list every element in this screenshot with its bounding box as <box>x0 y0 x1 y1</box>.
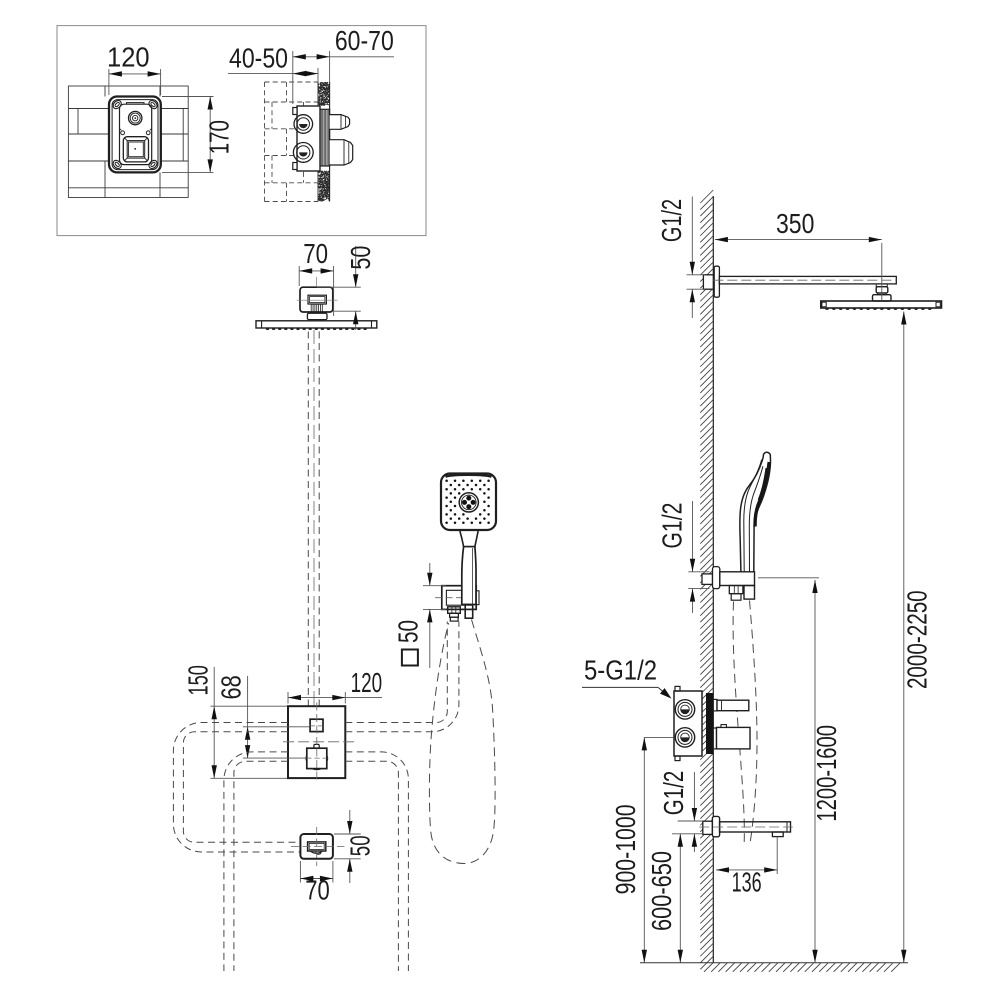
svg-text:150: 150 <box>183 665 214 695</box>
svg-text:G1/2: G1/2 <box>658 771 689 815</box>
svg-text:50: 50 <box>345 246 376 270</box>
svg-text:G1/2: G1/2 <box>656 199 687 242</box>
svg-text:350: 350 <box>776 208 814 239</box>
svg-text:170: 170 <box>204 120 235 154</box>
svg-text:70: 70 <box>303 238 328 269</box>
svg-text:5-G1/2: 5-G1/2 <box>584 655 657 686</box>
svg-text:900-1000: 900-1000 <box>610 804 641 894</box>
svg-text:50: 50 <box>344 835 375 856</box>
svg-text:60-70: 60-70 <box>335 25 394 56</box>
svg-text:2000-2250: 2000-2250 <box>902 590 933 689</box>
svg-text:50: 50 <box>393 620 424 643</box>
svg-text:70: 70 <box>305 875 330 906</box>
svg-text:40-50: 40-50 <box>229 43 288 74</box>
svg-text:1200-1600: 1200-1600 <box>811 725 842 822</box>
svg-text:120: 120 <box>107 42 150 73</box>
svg-text:136: 136 <box>732 867 762 898</box>
svg-text:G1/2: G1/2 <box>657 503 688 549</box>
svg-text:120: 120 <box>351 667 383 698</box>
svg-text:600-650: 600-650 <box>646 851 677 931</box>
svg-text:68: 68 <box>216 675 247 699</box>
